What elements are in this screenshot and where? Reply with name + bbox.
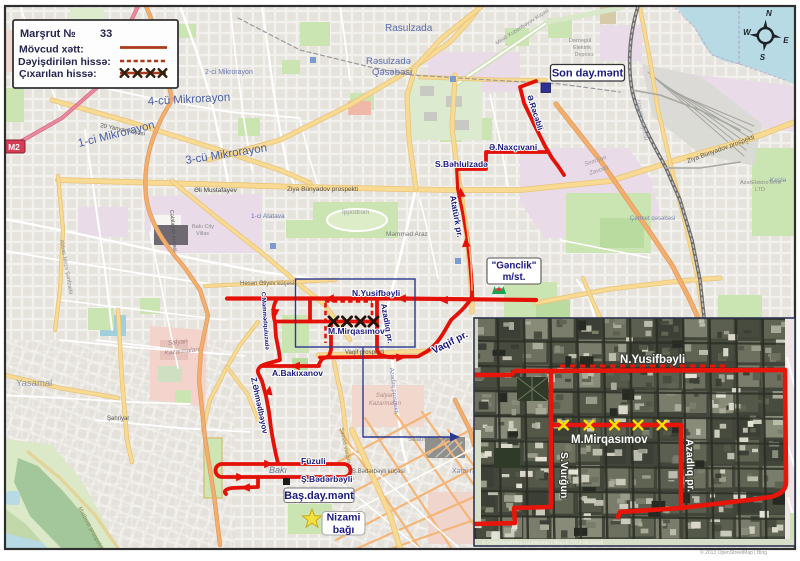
svg-text:İppodrom: İppodrom	[342, 207, 369, 216]
svg-text:Rasulzada: Rasulzada	[385, 23, 433, 34]
svg-text:Nizami: Nizami	[327, 512, 361, 524]
svg-text:33: 33	[100, 28, 112, 40]
svg-text:S: S	[760, 53, 766, 62]
svg-text:Çermet qəsəbəsi: Çermet qəsəbəsi	[630, 216, 675, 222]
svg-text:A.Bakıxanov: A.Bakıxanov	[272, 368, 323, 378]
svg-text:S.Bəhlulzadə: S.Bəhlulzadə	[435, 159, 488, 169]
svg-text:bağı: bağı	[333, 524, 355, 536]
svg-text:Yasamal: Yasamal	[16, 378, 52, 389]
svg-text:M.Mirqasımov: M.Mirqasımov	[328, 326, 385, 336]
svg-text:Salatın Əsgərova: Salatın Əsgərova	[408, 437, 455, 443]
svg-text:Ə.Naxçıvani: Ə.Naxçıvani	[489, 142, 537, 152]
svg-text:M.Mirqasımov: M.Mirqasımov	[571, 434, 648, 446]
svg-text:Həsən Əliyev küçəsi: Həsən Əliyev küçəsi	[240, 281, 294, 287]
svg-text:Azadlıq pr.: Azadlıq pr.	[683, 439, 697, 493]
svg-text:Dərnəgül: Dərnəgül	[569, 38, 591, 44]
svg-text:Məmməd Araz: Məmməd Araz	[386, 231, 428, 238]
svg-text:Şəhriyar: Şəhriyar	[107, 416, 129, 422]
svg-text:Bakı: Bakı	[269, 465, 288, 475]
svg-text:m/st.: m/st.	[503, 272, 526, 283]
svg-text:Qəsəbəsi: Qəsəbəsi	[372, 67, 412, 78]
svg-text:Elektrik: Elektrik	[573, 45, 591, 51]
svg-text:Çıxarılan hissə:: Çıxarılan hissə:	[19, 68, 97, 80]
svg-text:N.Yusifbəyli: N.Yusifbəyli	[352, 288, 400, 298]
svg-text:2-ci Mikrorayon: 2-ci Mikrorayon	[205, 69, 253, 76]
svg-text:"Gənclik": "Gənclik"	[492, 260, 537, 271]
svg-text:Mövcud xətt:: Mövcud xətt:	[19, 44, 84, 56]
svg-text:S.Vurğun: S.Vurğun	[558, 452, 570, 498]
svg-text:Ş.Bədərbəyli: Ş.Bədərbəyli	[301, 474, 353, 484]
svg-text:N.Yusifbəyli: N.Yusifbəyli	[620, 354, 685, 366]
svg-text:Son day.mənt: Son day.mənt	[552, 68, 624, 80]
svg-text:© 2013 OpenStreetMap | Bing: © 2013 OpenStreetMap | Bing	[700, 549, 767, 556]
svg-text:Əli Mustafayev: Əli Mustafayev	[194, 187, 238, 194]
svg-text:Ş.Bədərbəyli küçəsi: Ş.Bədərbəyli küçəsi	[352, 469, 405, 475]
svg-text:Ziya Bünyadov prospekti: Ziya Bünyadov prospekti	[287, 186, 358, 193]
svg-text:Baş.day.mənt: Baş.day.mənt	[284, 490, 354, 502]
svg-text:E: E	[783, 36, 789, 45]
svg-text:M2: M2	[8, 142, 20, 152]
svg-text:AzərElektroTerm: AzərElektroTerm	[740, 180, 781, 186]
svg-text:Dəyişdirilən hissə:: Dəyişdirilən hissə:	[18, 56, 111, 68]
svg-text:N: N	[766, 9, 772, 18]
svg-text:LTD: LTD	[755, 187, 765, 193]
svg-text:Rəsulzadə: Rəsulzadə	[366, 56, 411, 67]
svg-text:Deposu: Deposu	[575, 52, 594, 58]
svg-text:Villas: Villas	[196, 231, 209, 237]
svg-text:Marşrut №: Marşrut №	[20, 28, 76, 40]
svg-text:Bakı City: Bakı City	[192, 224, 214, 230]
svg-text:1-ci Alatava: 1-ci Alatava	[251, 213, 285, 220]
svg-text:Füzuli: Füzuli	[301, 456, 326, 466]
